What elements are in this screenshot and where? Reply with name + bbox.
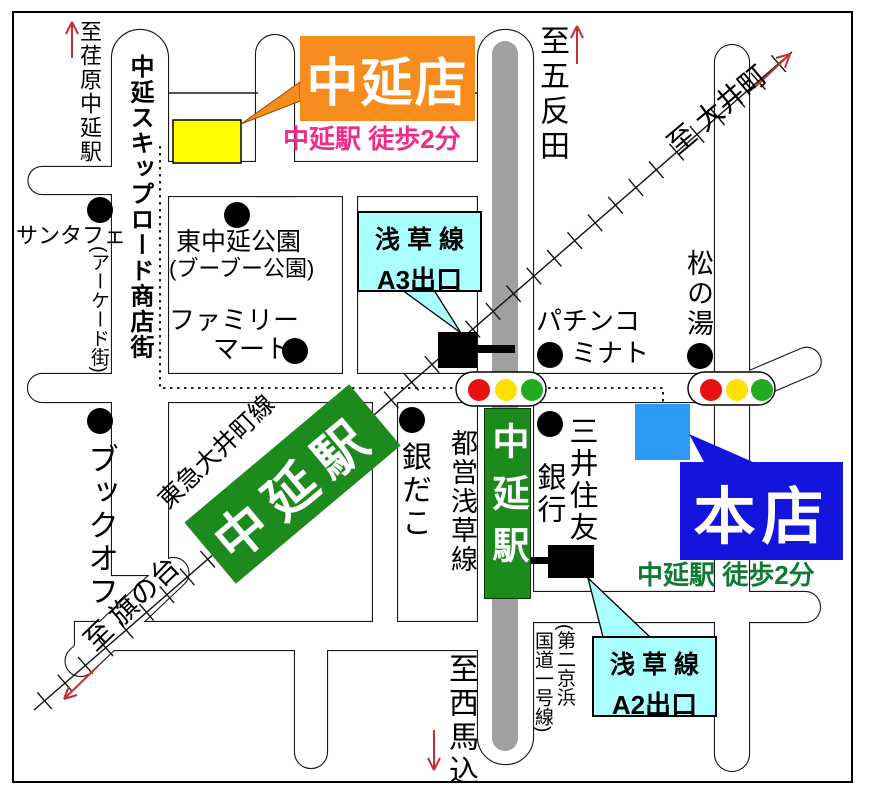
branch-store-sign: 中延店 [300,36,475,121]
santafe-dot-icon [87,197,113,223]
keihin-road-label-1: (第二京浜 [555,624,574,706]
landmark-park-line1: 東中延公園 [176,230,301,255]
railway-tick [588,215,602,232]
landmark-park-line2: (ブーブー公園) [169,258,314,280]
signal-green-icon [521,379,543,401]
landmark-matsunoyu: 松の湯 [684,249,711,339]
branch-store-walk-note: 中延駅 徒歩2分 [283,126,461,152]
main-store-sign: 本店 [680,462,843,560]
park-dot-icon [224,202,250,228]
a2-exit-callout: 浅 草 線 A2出口 [592,636,717,717]
bank-dot-icon [537,411,563,437]
landmark-gindako: 銀だこ [398,441,428,540]
railway-tick [425,356,439,373]
subway-station-name: 中延駅 [489,422,526,578]
direction-gotanda: 至五反田 [536,25,566,165]
landmark-bank-line2: 銀行 [534,462,563,526]
traffic-light-west [456,372,546,406]
arrow-down-nishimagome [428,730,440,770]
railway-tick [568,232,582,249]
signal-yellow-icon [495,379,517,401]
landmark-familymart-line1: ファミリー [169,307,299,333]
landmark-familymart-line2: マート [213,336,291,362]
landmark-bank-line1: 三井住友 [566,416,595,544]
gindako-dot-icon [399,407,425,433]
railway-tick [629,179,643,196]
a2-exit-name: A2出口 [594,685,715,722]
signal-yellow-icon [726,379,748,401]
keihin-road-label-2: 国道一号線) [533,631,552,732]
a3-line-name: 浅 草 線 [359,220,480,256]
skip-road-shopping-street-label: 中延スキップロード商店街 [127,54,151,360]
landmark-bookoff: ブックオフ [85,443,116,608]
landmark-arcade: (アーケード街) [89,246,108,373]
landmark-pachinko-line1: パチンコ [536,308,640,334]
railway-tick [37,693,51,710]
railway-tick [608,197,622,214]
subway-nakanobu-station-sign: 中延駅 [484,408,531,599]
a3-exit-name: A3出口 [359,260,480,297]
a3-exit-connector [475,345,515,353]
store-access-map: 至荏原中延駅 中延スキップロード商店街 サンタフェ (アーケード街) 東中延公園… [0,0,886,809]
bookoff-dot-icon [87,408,113,434]
main-store-building-marker [635,404,690,460]
landmark-santafe: サンタフェ [16,225,126,247]
railway-tick [547,250,561,267]
landmark-pachinko-line2: ミナト [571,340,649,366]
direction-ebara-nakanobu: 至荏原中延駅 [78,20,100,164]
branch-store-building-marker [173,120,241,163]
pachinko-dot-icon [537,342,563,368]
direction-nishimagome: 至西馬込 [445,653,475,789]
a3-exit-callout: 浅 草 線 A3出口 [357,211,482,292]
a3-exit-square [438,332,477,368]
matsunoyu-dot-icon [687,343,713,369]
a2-line-name: 浅 草 線 [594,645,715,681]
toei-asakusa-line-label: 都営浅草線 [448,429,475,574]
traffic-light-east [688,372,775,405]
railway-tick [58,675,72,692]
signal-red-icon [468,379,490,401]
arrow-up-gotanda [571,26,583,64]
signal-green-icon [751,379,773,401]
signal-red-icon [700,379,722,401]
a2-exit-square [548,545,594,578]
main-store-walk-note: 中延駅 徒歩2分 [637,562,815,588]
